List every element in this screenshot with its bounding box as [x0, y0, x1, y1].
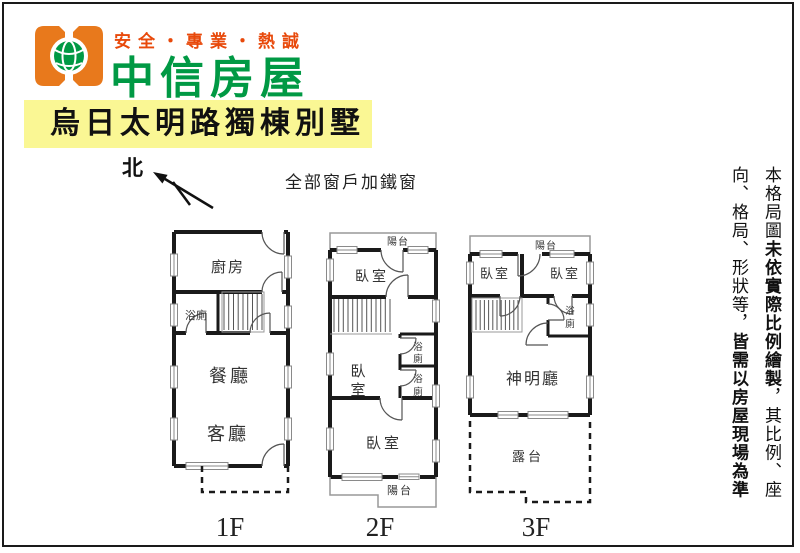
floor-label-2f: 2F [360, 512, 400, 543]
room-label-bedroom-mid-2f: 臥 [350, 363, 365, 380]
property-title-banner: 烏日太明路獨棟別墅 [24, 100, 372, 148]
room-label-bedroom-mid-2f: 室 [350, 382, 365, 399]
stairs-icon [330, 299, 392, 334]
disclaimer-part4: 皆需以房屋現場為準 [729, 333, 748, 500]
room-label-bedroom-right-3f: 臥室 [550, 266, 580, 281]
stairs-icon [222, 292, 264, 332]
floorplan-3f: 陽台 臥室 臥室 浴 廁 神明廳 露台 [460, 226, 600, 518]
room-label-balcony-bottom-2f: 陽台 [387, 483, 413, 497]
stairs-icon [472, 298, 522, 332]
disclaimer-part2: 未依實際比例繪製 [762, 240, 781, 388]
room-label-dining: 餐廳 [209, 366, 251, 386]
room-label-kitchen: 廚房 [211, 258, 245, 276]
floorplan-2f: 陽台 臥室 臥 室 浴 廁 浴 廁 臥室 陽台 [320, 226, 450, 518]
room-label-terrace: 露台 [512, 449, 544, 464]
room-label-living: 客廳 [207, 424, 249, 444]
room-label-balcony-3f: 陽台 [535, 239, 557, 252]
room-label-shrine: 神明廳 [506, 369, 560, 388]
disclaimer-text: 本格局圖未依實際比例繪製，其比例、座向、格局、形狀等，皆需以房屋現場為準 [722, 166, 788, 512]
company-name: 中信房屋 [110, 42, 310, 106]
room-label-bath1-2f: 浴 [413, 342, 423, 353]
room-label-bath1-2f: 廁 [413, 353, 423, 365]
room-label-balcony-top-2f: 陽台 [387, 235, 409, 248]
balcony-outline-bottom-2f [330, 477, 436, 507]
room-label-bath-1f: 浴廁 [185, 308, 207, 322]
globe-icon [50, 37, 88, 75]
north-arrow-icon [95, 148, 225, 218]
room-label-bath-3f: 廁 [565, 318, 575, 330]
floorplan-flyer: 安全・專業・熱誠 中信房屋 烏日太明路獨棟別墅 北 全部窗戶加鐵窗 [0, 0, 800, 553]
room-label-bedroom-bottom-2f: 臥室 [366, 435, 402, 452]
room-label-bedroom-left-3f: 臥室 [480, 266, 510, 281]
disclaimer-part1: 本格局圖 [762, 166, 781, 240]
room-label-bath-3f: 浴 [565, 306, 575, 317]
room-label-bath2-2f: 浴 [413, 374, 423, 385]
floor-label-3f: 3F [516, 512, 556, 543]
property-title: 烏日太明路獨棟別墅 [24, 100, 372, 148]
room-label-bedroom-top-2f: 臥室 [355, 268, 389, 285]
window-note: 全部窗戶加鐵窗 [285, 168, 418, 193]
floorplan-1f: 廚房 浴廁 餐廳 客廳 [166, 226, 294, 518]
floor-label-1f: 1F [210, 512, 250, 543]
room-label-bath2-2f: 廁 [413, 386, 423, 398]
company-logo [28, 18, 110, 96]
